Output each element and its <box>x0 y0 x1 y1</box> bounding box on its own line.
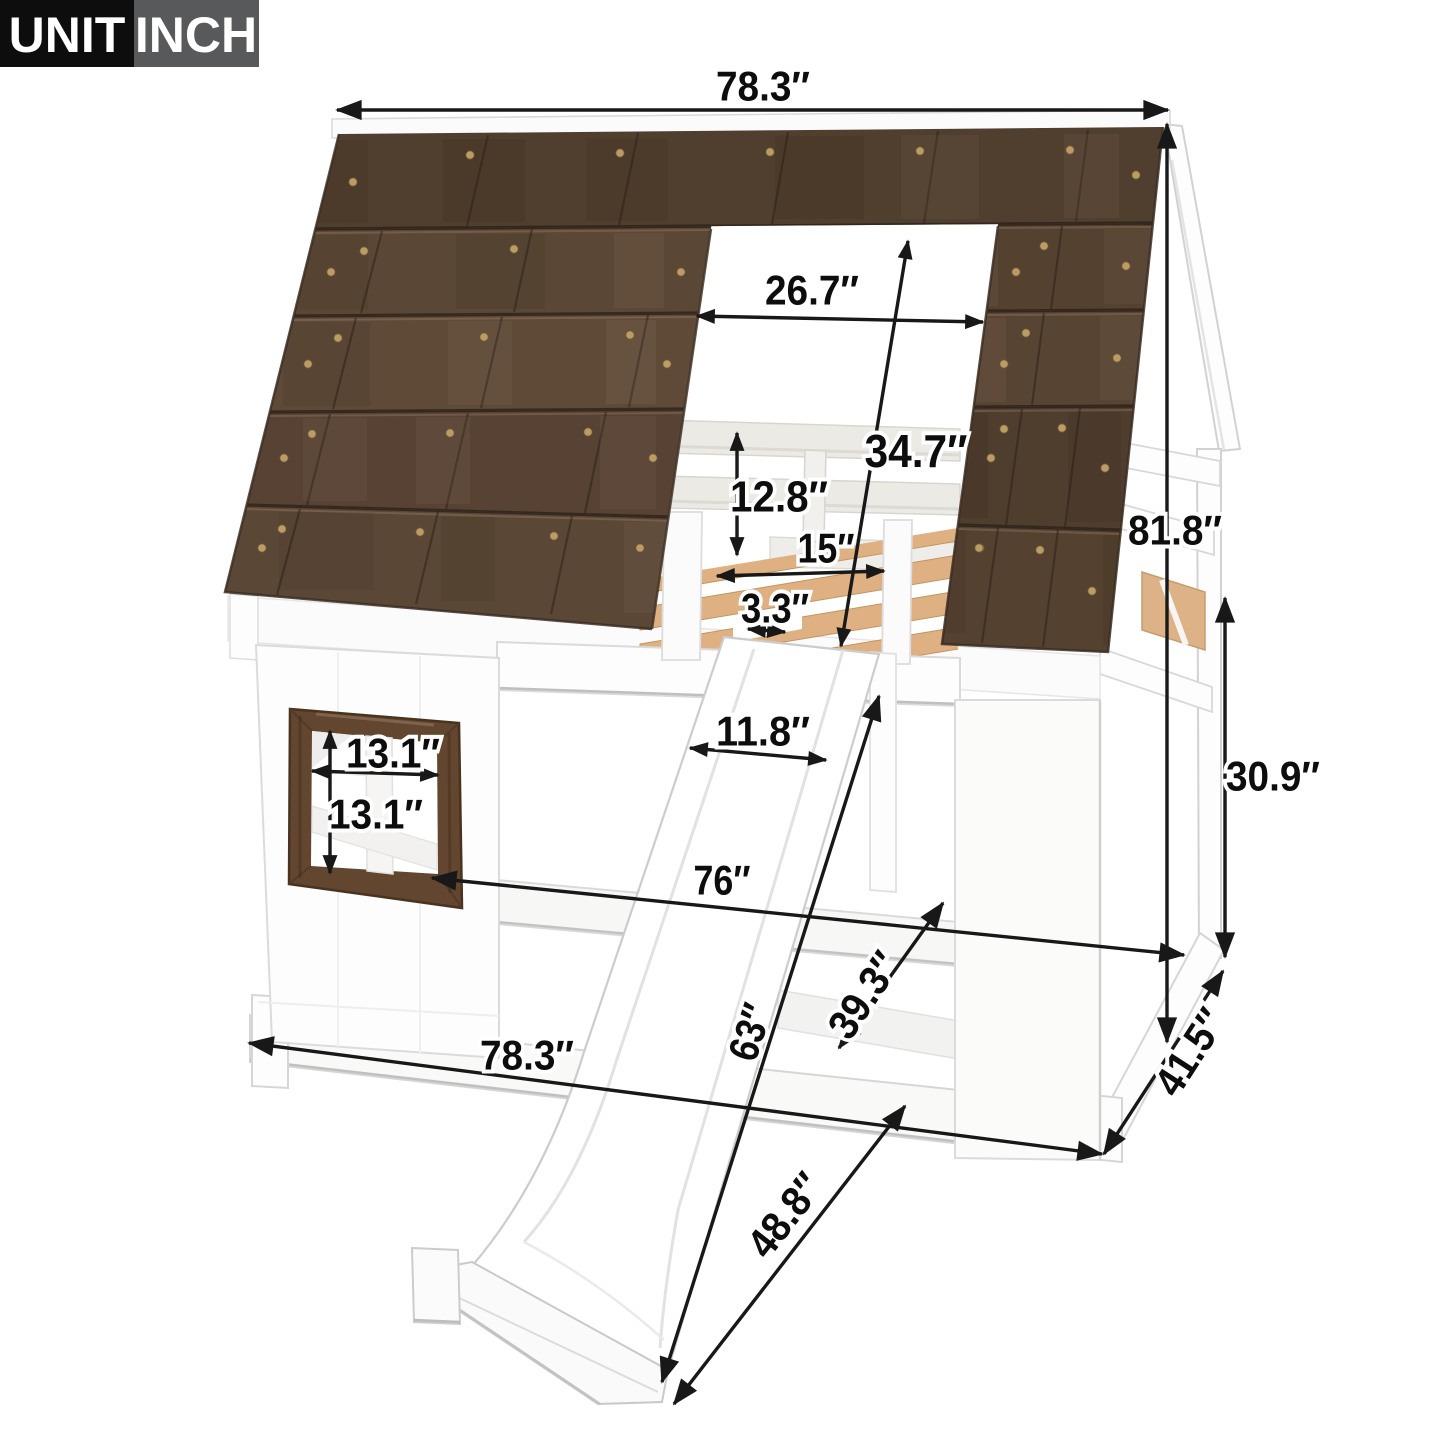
svg-text:UNIT: UNIT <box>9 7 126 63</box>
svg-text:26.7″: 26.7″ <box>765 267 859 314</box>
svg-text:13.1″: 13.1″ <box>329 791 423 838</box>
svg-text:30.9″: 30.9″ <box>1226 753 1320 800</box>
svg-text:78.3″: 78.3″ <box>716 63 810 110</box>
svg-text:34.7″: 34.7″ <box>865 425 968 477</box>
svg-text:81.8″: 81.8″ <box>1128 507 1222 554</box>
svg-text:76″: 76″ <box>694 857 751 904</box>
svg-text:11.8″: 11.8″ <box>716 708 810 755</box>
svg-text:78.3″: 78.3″ <box>480 1032 574 1079</box>
svg-text:13.1″: 13.1″ <box>346 730 440 777</box>
svg-text:15″: 15″ <box>798 525 855 572</box>
svg-text:INCH: INCH <box>135 7 257 63</box>
svg-text:3.3″: 3.3″ <box>741 585 809 632</box>
svg-text:12.8″: 12.8″ <box>730 473 828 522</box>
